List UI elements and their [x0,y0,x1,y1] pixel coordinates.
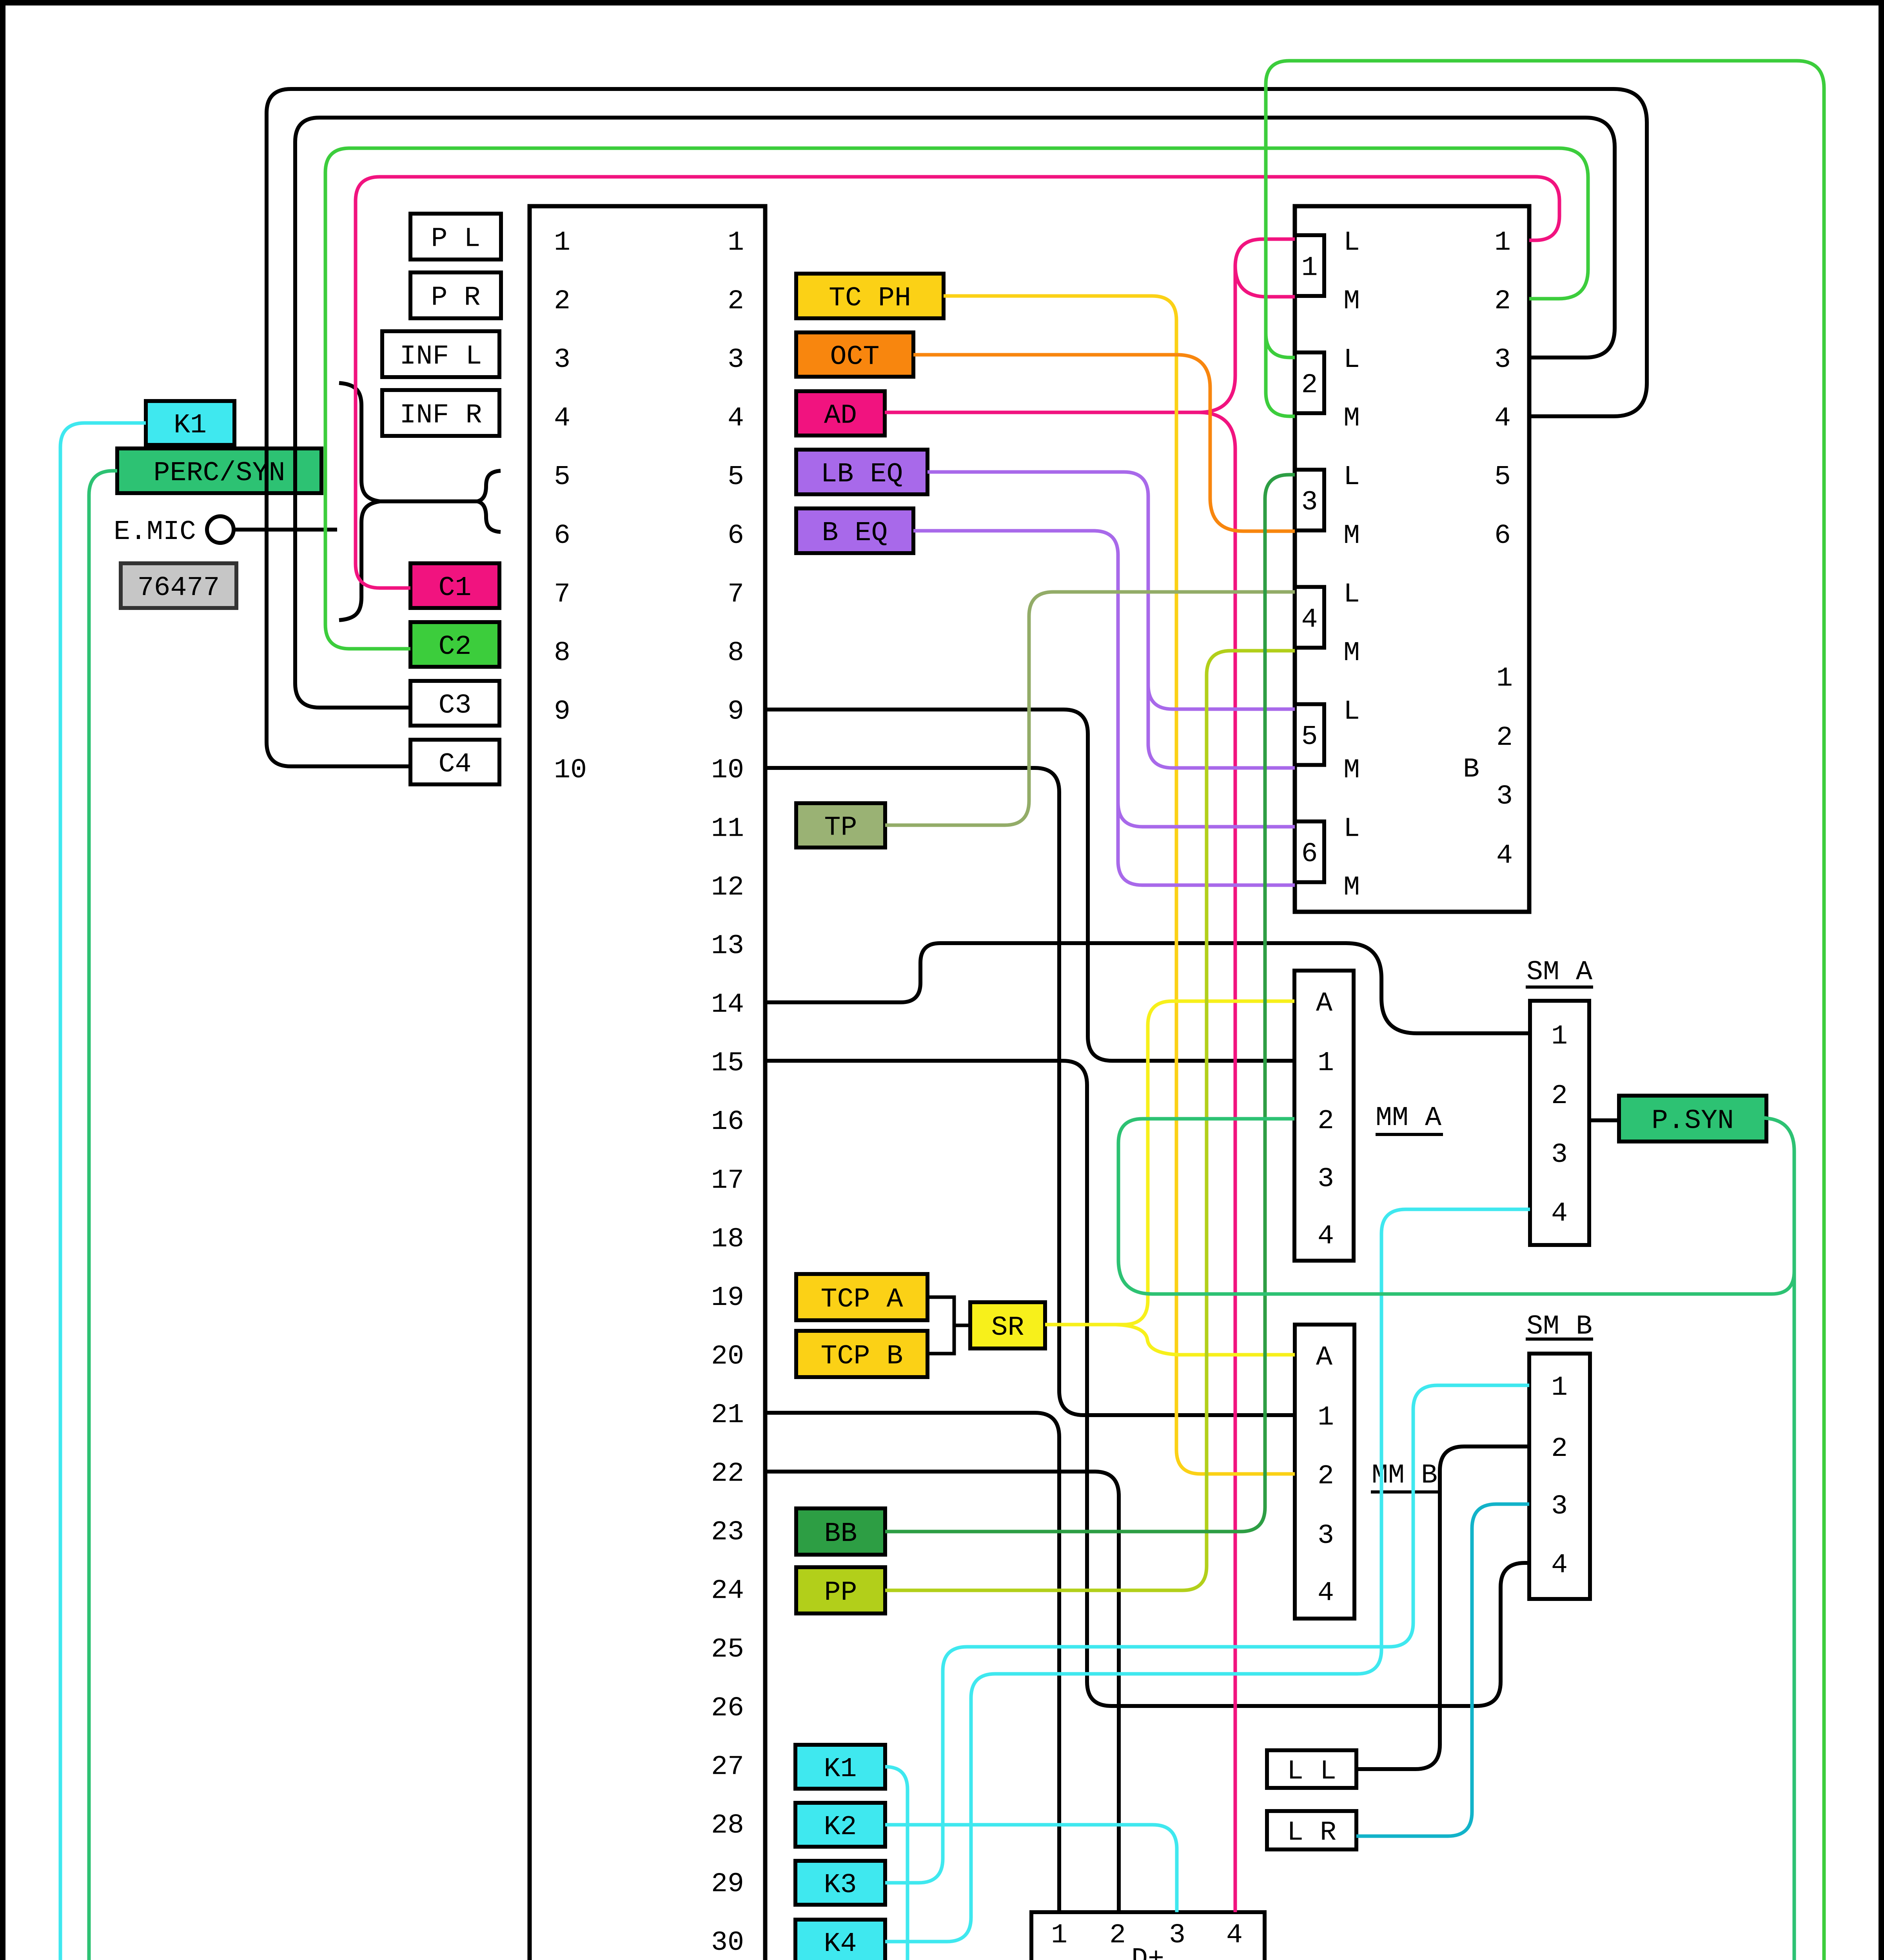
svg-text:3: 3 [1301,487,1318,518]
svg-text:M: M [1343,638,1360,669]
svg-text:26: 26 [711,1693,744,1724]
svg-text:4: 4 [1551,1198,1568,1229]
svg-text:TP: TP [824,813,857,844]
svg-text:14: 14 [711,989,744,1020]
svg-text:4: 4 [1494,403,1511,434]
svg-text:2: 2 [1551,1081,1568,1112]
svg-text:5: 5 [728,462,744,493]
svg-text:10: 10 [711,755,744,786]
svg-text:29: 29 [711,1869,744,1900]
svg-text:1: 1 [1051,1920,1067,1951]
svg-text:30: 30 [711,1927,744,1958]
svg-text:L: L [1343,696,1360,727]
svg-text:21: 21 [711,1400,744,1431]
svg-text:2: 2 [1551,1434,1568,1465]
svg-text:M: M [1343,755,1360,786]
svg-text:18: 18 [711,1224,744,1255]
svg-text:A: A [1316,988,1332,1019]
svg-text:12: 12 [711,872,744,903]
svg-text:M: M [1343,521,1360,552]
svg-text:C2: C2 [438,632,471,662]
svg-text:MM A: MM A [1376,1103,1441,1134]
svg-text:5: 5 [1494,462,1511,493]
svg-text:1: 1 [728,227,744,258]
svg-text:1: 1 [554,227,570,258]
svg-text:L: L [1343,227,1360,258]
svg-text:2: 2 [1496,722,1513,753]
svg-text:K2: K2 [824,1812,857,1843]
svg-text:3: 3 [1496,781,1513,812]
svg-text:1: 1 [1318,1048,1334,1079]
svg-text:1: 1 [1496,663,1513,694]
svg-text:2: 2 [1494,286,1511,317]
svg-text:4: 4 [1226,1920,1243,1951]
svg-text:2: 2 [1318,1461,1334,1492]
svg-text:9: 9 [554,696,570,727]
svg-text:3: 3 [1551,1491,1568,1522]
svg-text:6: 6 [1494,521,1511,552]
svg-text:L: L [1343,462,1360,493]
svg-text:K1: K1 [824,1754,857,1785]
svg-text:1: 1 [1301,253,1318,284]
svg-text:24: 24 [711,1576,744,1607]
svg-text:25: 25 [711,1634,744,1665]
svg-text:3: 3 [1318,1521,1334,1552]
svg-text:2: 2 [728,286,744,317]
svg-text:3: 3 [1494,345,1511,376]
svg-text:3: 3 [728,345,744,376]
svg-text:M: M [1343,403,1360,434]
svg-text:1: 1 [1551,1372,1568,1403]
svg-text:2: 2 [554,286,570,317]
svg-text:OCT: OCT [830,342,879,373]
svg-text:9: 9 [728,696,744,727]
svg-text:3: 3 [1318,1164,1334,1195]
svg-text:C4: C4 [438,749,471,780]
svg-text:5: 5 [1301,722,1318,753]
svg-text:8: 8 [728,638,744,669]
svg-text:11: 11 [711,814,744,845]
svg-text:3: 3 [554,345,570,376]
svg-text:C3: C3 [438,690,471,721]
svg-text:22: 22 [711,1459,744,1490]
svg-text:AD: AD [824,401,857,432]
svg-text:TC PH: TC PH [829,283,911,314]
svg-text:4: 4 [728,403,744,434]
svg-text:1: 1 [1494,227,1511,258]
svg-text:SR: SR [991,1312,1024,1343]
svg-text:10: 10 [554,755,587,786]
svg-text:8: 8 [554,638,570,669]
svg-text:B EQ: B EQ [822,518,888,549]
svg-text:M: M [1343,286,1360,317]
svg-text:TCP A: TCP A [820,1284,903,1315]
svg-text:K3: K3 [824,1870,857,1901]
svg-text:L: L [1343,814,1360,845]
svg-text:2: 2 [1109,1920,1126,1951]
svg-text:7: 7 [554,579,570,610]
svg-text:4: 4 [1318,1578,1334,1609]
svg-text:27: 27 [711,1751,744,1782]
svg-text:4: 4 [1318,1221,1334,1252]
svg-text:2: 2 [1318,1106,1334,1137]
svg-text:6: 6 [728,521,744,552]
svg-text:L: L [1343,345,1360,376]
svg-text:M: M [1343,872,1360,903]
svg-text:LB EQ: LB EQ [820,459,903,490]
svg-text:E.MIC: E.MIC [114,517,196,548]
svg-text:K1: K1 [174,410,207,441]
svg-text:2: 2 [1301,370,1318,401]
svg-text:16: 16 [711,1107,744,1138]
svg-text:K4: K4 [824,1929,857,1960]
svg-text:7: 7 [728,579,744,610]
svg-text:L L: L L [1287,1756,1336,1787]
svg-text:P R: P R [431,283,480,314]
svg-text:4: 4 [1301,604,1318,635]
svg-text:INF L: INF L [399,341,482,372]
svg-text:PP: PP [824,1577,857,1608]
svg-text:28: 28 [711,1810,744,1841]
svg-text:D+: D+ [1131,1944,1164,1960]
svg-text:4: 4 [554,403,570,434]
svg-text:15: 15 [711,1048,744,1079]
svg-text:6: 6 [1301,839,1318,870]
svg-text:P.SYN: P.SYN [1652,1106,1734,1137]
svg-text:3: 3 [1551,1140,1568,1171]
svg-text:L R: L R [1287,1817,1336,1848]
svg-text:6: 6 [554,521,570,552]
svg-text:SM A: SM A [1526,957,1592,988]
svg-text:1: 1 [1551,1021,1568,1052]
svg-text:20: 20 [711,1341,744,1372]
svg-text:L: L [1343,579,1360,610]
svg-text:17: 17 [711,1165,744,1196]
svg-text:4: 4 [1551,1550,1568,1581]
svg-text:19: 19 [711,1283,744,1314]
svg-text:INF R: INF R [399,400,482,431]
svg-text:3: 3 [1169,1920,1185,1951]
svg-text:1: 1 [1318,1402,1334,1433]
svg-text:23: 23 [711,1517,744,1548]
svg-text:C1: C1 [438,573,471,604]
svg-text:5: 5 [554,462,570,493]
svg-text:13: 13 [711,931,744,962]
svg-text:76477: 76477 [137,573,220,604]
svg-text:BB: BB [824,1519,857,1550]
svg-text:TCP B: TCP B [820,1341,903,1372]
svg-text:A: A [1316,1342,1332,1373]
svg-text:B: B [1463,754,1479,785]
svg-text:4: 4 [1496,840,1513,871]
svg-text:P L: P L [431,224,480,255]
